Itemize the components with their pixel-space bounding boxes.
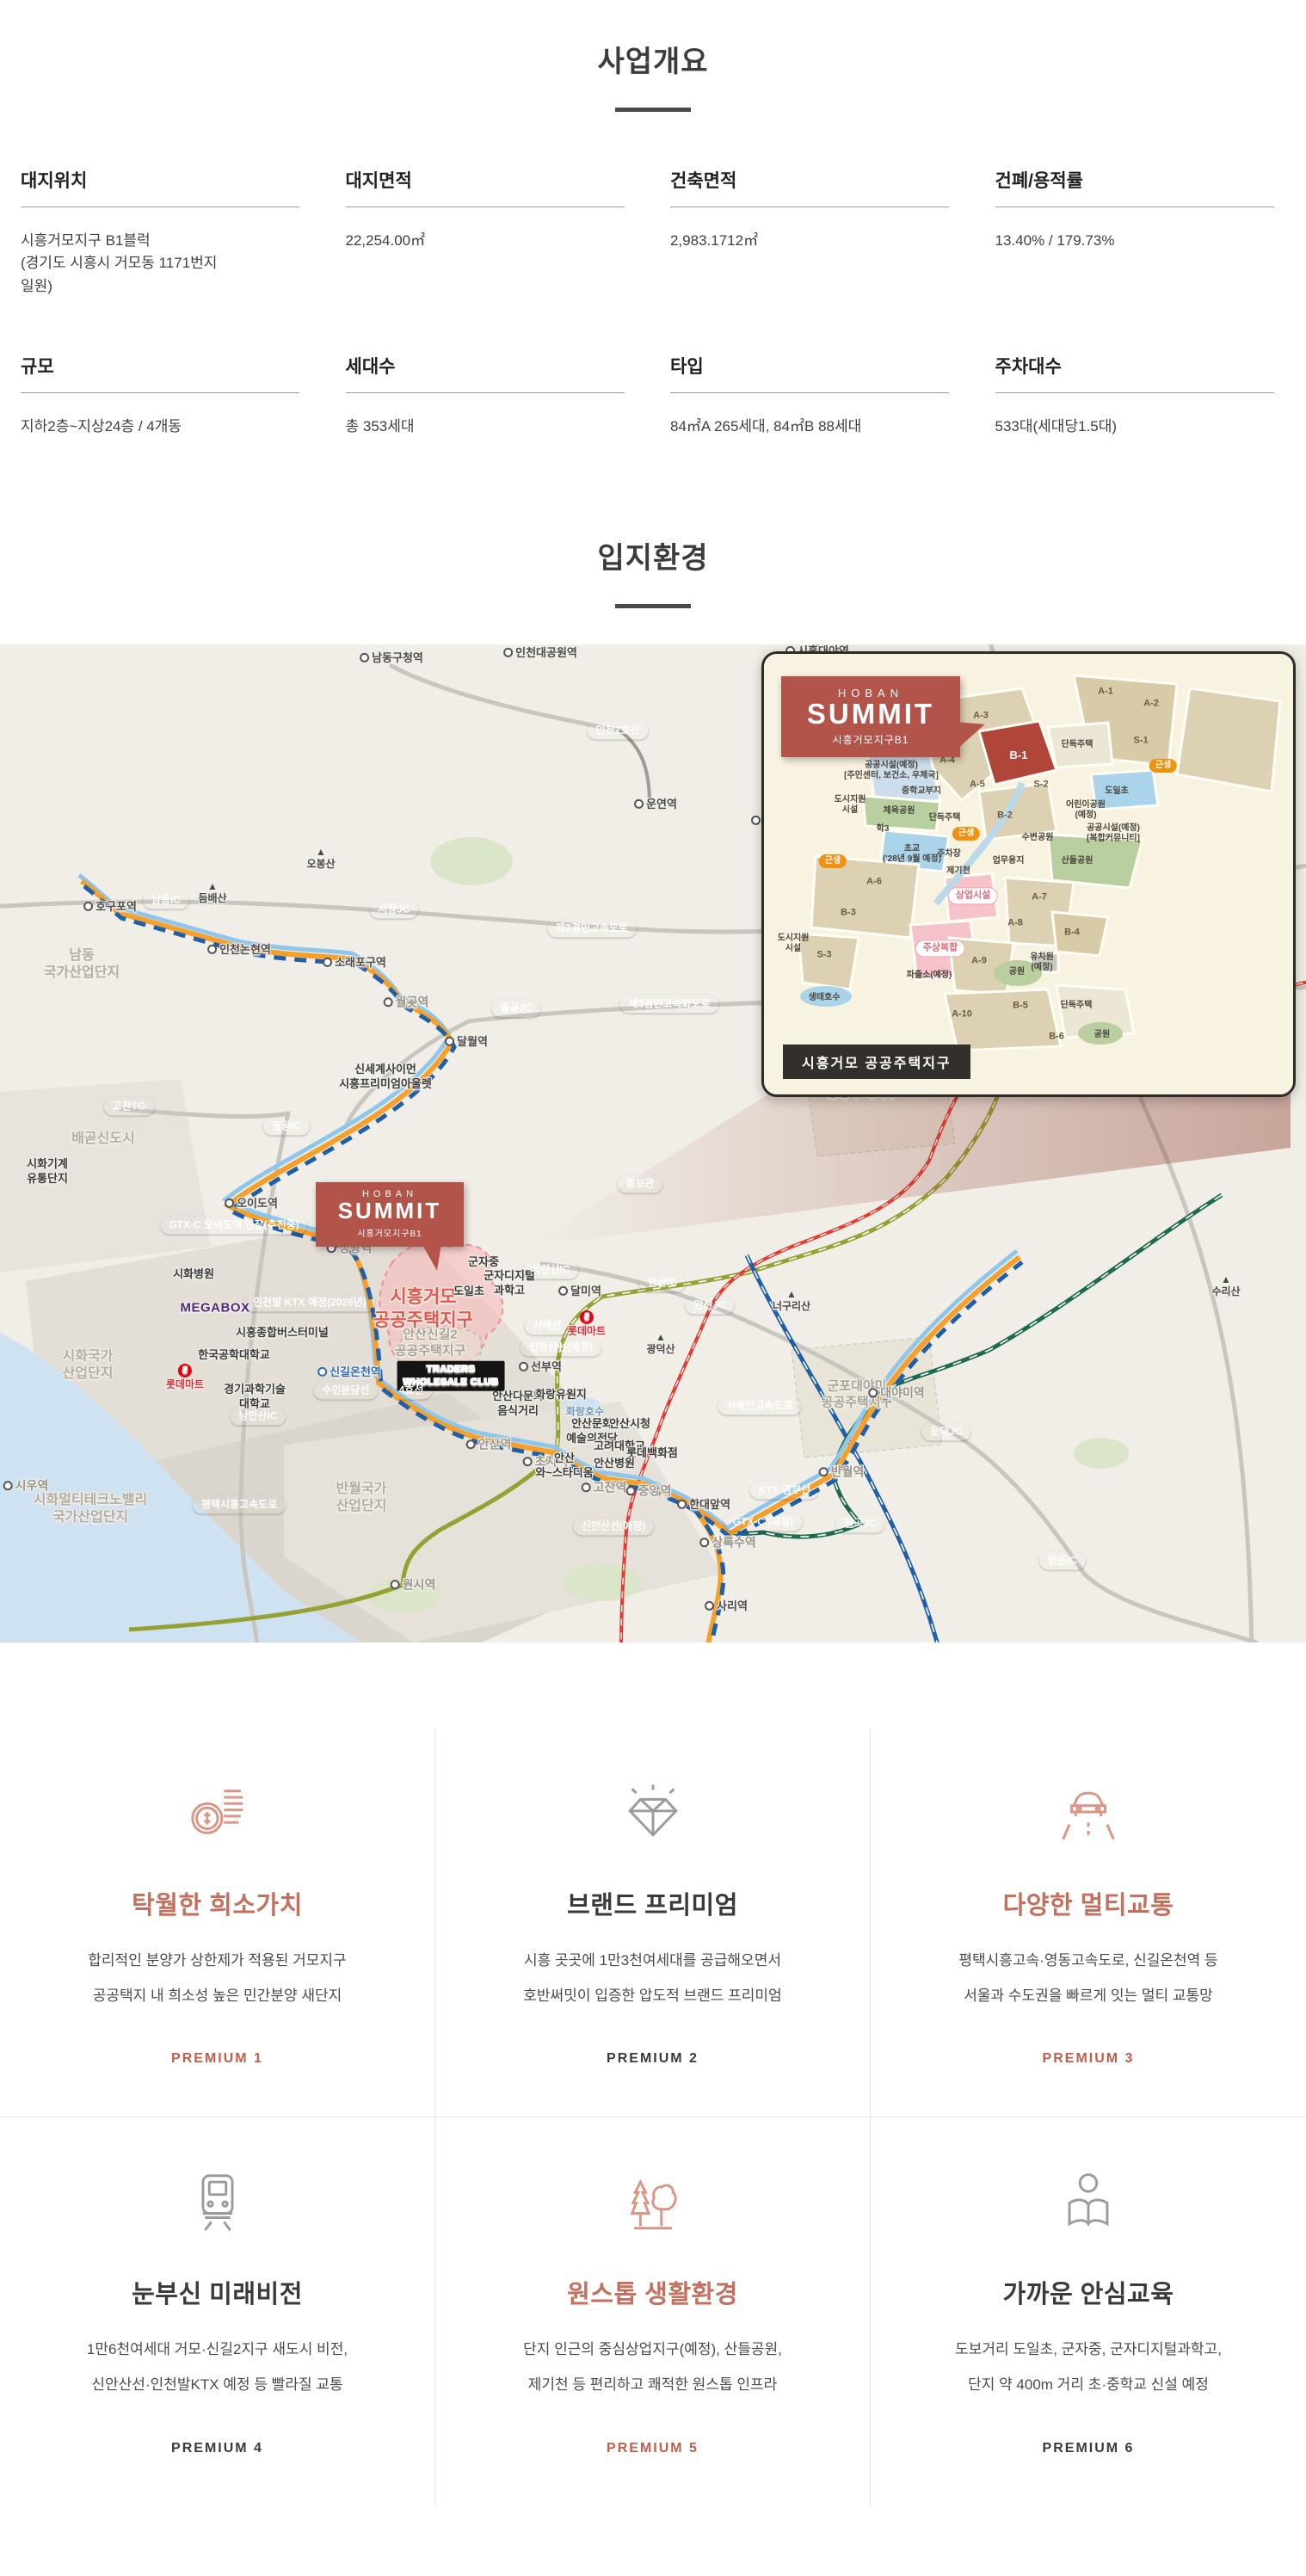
road-pill: 둔대JC [921, 1423, 970, 1441]
premium-card-6: 가까운 안심교육 도보거리 도일초, 군자중, 군자디지털과학고, 단지 약 4… [871, 2117, 1306, 2506]
coins-icon [0, 1778, 434, 1846]
inset-name-label: 단독주택 [929, 813, 961, 823]
station-label: 선부역 [519, 1360, 562, 1374]
poi-label: 안산시청 [609, 1417, 650, 1431]
title-underline [615, 108, 691, 112]
inset-block-label: S-2 [1033, 780, 1048, 791]
inset-block-label: A-6 [866, 877, 882, 888]
road-pill: 서창JC [369, 901, 418, 919]
brand-sub: 시흥거모지구B1 [319, 1226, 460, 1239]
section-location: 입지환경 [0, 534, 1306, 1642]
premium-card-1: 탁월한 희소가치 합리적인 분양가 상한제가 적용된 거모지구 공공택지 내 희… [0, 1729, 435, 2117]
geunsaeng-pill: 근생 [1149, 759, 1177, 773]
road-pill: 월곶JC [491, 1000, 540, 1018]
incheon-line2-pill: 인천2호선 [588, 722, 649, 740]
inset-name-label: 초교 ('28년 9월 예정) [883, 844, 941, 865]
inset-block-label: A-9 [971, 956, 987, 967]
poi-label: 안산 와~스타디움 [535, 1451, 593, 1480]
train-icon [0, 2167, 434, 2234]
area-label: 시화멀티테크노밸리 국가산업단지 [34, 1492, 147, 1526]
inset-name-label: 주차장 [937, 849, 961, 860]
page: 사업개요 대지위치시흥거모지구 B1블럭 (경기도 시흥시 거모동 1171번지… [0, 0, 1306, 2506]
station-label: 원시역 [391, 1578, 436, 1593]
premium-title: 원스톱 생활환경 [435, 2274, 870, 2310]
poi-label: 시흥종합버스터미널 [236, 1326, 329, 1340]
inset-name-label: 단독주택 [1062, 740, 1093, 750]
overview-cell: 규모지하2층~지상24층 / 4개동 [21, 353, 311, 438]
gtx-line-pill: GTX-C (예정) [724, 1513, 803, 1531]
premium-desc: 제기천 등 편리하고 쾌적한 원스톱 인프라 [435, 2376, 870, 2394]
mountain-label: ▲ 수리산 [1211, 1274, 1240, 1297]
inset-name-label: 유치원 (예정) [1030, 952, 1054, 973]
reading-person-icon [871, 2167, 1306, 2234]
car-road-icon [871, 1778, 1306, 1846]
station-label: 오이도역 [225, 1197, 278, 1211]
commercial-pill: 주상복합 [915, 940, 965, 957]
field-label: 건폐/용적률 [995, 167, 1286, 193]
overview-title: 사업개요 [0, 38, 1306, 80]
hoban-summit-callout[interactable]: HOBAN SUMMIT 시흥거모지구B1 [316, 1182, 464, 1246]
mountain-label: ▲ 듬배산 [198, 881, 226, 903]
poi-label: 시화병원 [173, 1267, 214, 1281]
premium-desc: 단지 인근의 중심상업지구(예정), 산들공원, [435, 2341, 870, 2358]
inset-name-label: 어린이공원 (예정) [1066, 800, 1106, 821]
field-value: 시흥거모지구 B1블럭 (경기도 시흥시 거모동 1171번지 일원) [21, 230, 311, 298]
field-value: 84㎡A 265세대, 84㎡B 88세대 [670, 416, 961, 438]
inset-block-label: A-5 [970, 780, 985, 791]
station-label: 월곶역 [384, 995, 429, 1011]
mountain-label: ▲ 광덕산 [646, 1332, 675, 1354]
inset-block-label: S-1 [1133, 736, 1148, 747]
poi-label: 안산병원 [594, 1457, 635, 1470]
premium-desc: 서울과 수도권을 빠르게 잇는 멀티 교통망 [871, 1987, 1306, 2005]
brand-summit: SUMMIT [785, 699, 957, 730]
station-label: 소래포구역 [323, 956, 386, 970]
poi-label: 군자중 [468, 1255, 499, 1269]
premium-desc: 1만6천여세대 거모·신길2지구 새도시 비전, [0, 2341, 434, 2358]
diamond-icon [435, 1778, 870, 1846]
ktx-line-pill: KTX 경부선 [750, 1482, 819, 1500]
premium-desc: 단지 약 400m 거리 초·중학교 신설 예정 [871, 2376, 1306, 2394]
overview-cell: 대지면적22,254.00㎡ [346, 167, 637, 298]
field-label: 규모 [21, 353, 311, 379]
field-value: 13.40% / 179.73% [995, 230, 1286, 252]
premium-title: 브랜드 프리미엄 [435, 1885, 870, 1921]
road-pill: 양촌IC [1039, 1552, 1086, 1570]
premium-desc: 호반써밋이 입증한 압도적 브랜드 프리미엄 [435, 1987, 870, 2005]
premium-card-5: 원스톱 생활환경 단지 인근의 중심상업지구(예정), 산들공원, 제기천 등 … [435, 2117, 871, 2506]
inset-block-label: A-7 [1032, 892, 1047, 903]
poi-label: 신세계사이먼 시흥프리미엄아울렛 [339, 1063, 432, 1091]
field-label: 건축면적 [670, 167, 961, 193]
location-map[interactable]: 배곧신도시남동 국가산업단지시화국가 산업단지시화멀티테크노밸리 국가산업단지반… [0, 644, 1306, 1642]
premium-title: 다양한 멀티교통 [871, 1885, 1306, 1921]
road-pill: 남동IC [143, 891, 189, 909]
station-label: 인천논현역 [207, 943, 271, 957]
field-label: 대지위치 [21, 167, 311, 193]
road-pill: 정왕IC [263, 1118, 310, 1136]
inset-name-label: 도시지원 시설 [835, 795, 866, 816]
field-label: 타입 [670, 353, 961, 379]
inset-name-label: 제기천 [946, 866, 970, 877]
inset-name-label: 단독주택 [1061, 1001, 1093, 1011]
area-label: 배곧신도시 [71, 1131, 135, 1148]
premium-card-4: 눈부신 미래비전 1만6천여세대 거모·신길2지구 새도시 비전, 신안산선·인… [0, 2117, 435, 2506]
brand-sub: 시흥거모지구B1 [785, 732, 957, 747]
inset-name-label: 학3 [877, 824, 890, 835]
overview-cell: 대지위치시흥거모지구 B1블럭 (경기도 시흥시 거모동 1171번지 일원) [21, 167, 311, 298]
station-label: 시우역 [3, 1479, 49, 1494]
inset-name-label: 생태호수 [809, 993, 841, 1003]
inset-name-label: 수변공원 [1022, 833, 1054, 843]
road-pill: 평택시흥고속도로 [193, 1496, 286, 1514]
road-pill: 제2경인고속도로 [547, 920, 637, 938]
poi-label: 경기과학기술 대학교 [224, 1383, 286, 1411]
mountain-label: ▲ 오봉산 [306, 847, 335, 869]
ktx-line-pill: 인천발 KTX 예정(2026년) [244, 1294, 375, 1312]
poi-label: 시화기계 유통단지 [27, 1157, 68, 1186]
inset-block-label: B-3 [841, 908, 856, 919]
road-pill: 안산IC [639, 1274, 686, 1292]
station-label: 반월역 [819, 1465, 865, 1481]
sinansan-line-pill: 신안산선(예정) [573, 1518, 654, 1536]
inset-block-label: A-2 [1143, 699, 1159, 710]
field-value: 533대(세대당1.5대) [995, 416, 1286, 438]
station-label: 한대앞역 [677, 1498, 730, 1512]
overview-cell: 건축면적2,983.1712㎡ [670, 167, 961, 298]
poi-label: 화랑유원지 [535, 1388, 587, 1402]
geunsaeng-pill: 근생 [819, 854, 847, 868]
premium-section: 탁월한 희소가치 합리적인 분양가 상한제가 적용된 거모지구 공공택지 내 희… [0, 1729, 1306, 2506]
premium-desc: 평택시흥고속·영동고속도로, 신길온천역 등 [871, 1952, 1306, 1969]
premium-tag: PREMIUM 1 [0, 2051, 434, 2067]
field-value: 22,254.00㎡ [346, 230, 637, 252]
station-label: 사리역 [705, 1599, 748, 1613]
station-label: 호구포역 [83, 900, 137, 914]
station-label: 인천대공원역 [503, 646, 577, 660]
overview-cell: 건폐/용적률13.40% / 179.73% [995, 167, 1286, 298]
mountain-label: ▲ 너구리산 [773, 1289, 810, 1311]
road-pill: 남안산IC [230, 1408, 286, 1426]
callout-pointer-icon [422, 1243, 441, 1271]
premium-tag: PREMIUM 6 [871, 2441, 1306, 2456]
inset-name-label: 중학교부지 [902, 786, 941, 797]
inset-block-label: A-1 [1098, 687, 1113, 698]
section-overview: 사업개요 대지위치시흥거모지구 B1블럭 (경기도 시흥시 거모동 1171번지… [0, 0, 1306, 438]
station-label: 고잔역 [582, 1481, 627, 1496]
overview-table: 대지위치시흥거모지구 B1블럭 (경기도 시흥시 거모동 1171번지 일원) … [0, 167, 1306, 438]
field-label: 세대수 [346, 353, 637, 379]
inset-name-label: 체육공원 [884, 806, 915, 817]
field-label: 주차대수 [995, 353, 1286, 379]
megabox-label: MEGABOX [180, 1301, 249, 1317]
inset-b1-label: B-1 [1010, 749, 1028, 763]
premium-tag: PREMIUM 2 [435, 2051, 870, 2067]
road-pill: 팔곡JC [835, 1515, 884, 1533]
road-pill: 안산JC [685, 1297, 734, 1315]
premium-title: 탁월한 희소가치 [0, 1885, 434, 1921]
lottemart-label: 롯데마트 [166, 1364, 204, 1391]
trees-icon [435, 2167, 870, 2234]
field-label: 대지면적 [346, 167, 637, 193]
inset-block-label: B-4 [1064, 927, 1080, 939]
inset-block-label: B-5 [1013, 1001, 1028, 1012]
premium-tag: PREMIUM 3 [871, 2051, 1306, 2067]
sinansan-line-pill: 신안산선(예정) [521, 1339, 601, 1357]
commercial-pill: 상업시설 [948, 888, 998, 904]
overview-cell: 세대수총 353세대 [346, 353, 637, 438]
overview-cell: 주차대수533대(세대당1.5대) [995, 353, 1286, 438]
geunsaeng-pill: 근생 [952, 827, 980, 841]
station-label: 남동구청역 [360, 651, 423, 665]
inset-name-label: 공공시설(예정) [주민센터, 보건소, 우체국] [844, 761, 939, 781]
district-label: 안산신길2 공공주택지구 [395, 1328, 466, 1360]
site-plan-inset[interactable]: A-1A-2A-3단독주택S-1근생B-1A-4공공시설(예정) [주민센터, … [761, 651, 1296, 1097]
poi-label: 도일초 [453, 1285, 484, 1298]
premium-desc: 도보거리 도일초, 군자중, 군자디지털과학고, [871, 2341, 1306, 2358]
inset-name-label: 업무용지 [993, 856, 1025, 866]
overview-cell: 타입84㎡A 265세대, 84㎡B 88세대 [670, 353, 961, 438]
premium-title: 눈부신 미래비전 [0, 2274, 434, 2310]
location-title: 입지환경 [0, 534, 1306, 576]
inset-name-label: 도시지원 시설 [778, 934, 810, 954]
premium-tag: PREMIUM 4 [0, 2441, 434, 2456]
area-label: 반월국가 산업단지 [336, 1481, 387, 1515]
inset-block-label: A-10 [952, 1009, 972, 1020]
poi-label: 한국공학대학교 [198, 1348, 270, 1362]
field-value: 2,983.1712㎡ [670, 230, 961, 252]
inset-hoban-summit-callout: HOBAN SUMMIT 시흥거모지구B1 [781, 676, 960, 757]
station-label: 대야미역 [868, 1386, 925, 1402]
title-underline [615, 604, 691, 608]
premium-card-3: 다양한 멀티교통 평택시흥고속·영동고속도로, 신길온천역 등 서울과 수도권을… [871, 1729, 1306, 2117]
inset-block-label: B-2 [997, 810, 1013, 822]
inset-name-label: 도일초 [1105, 786, 1129, 797]
premium-desc: 합리적인 분양가 상한제가 적용된 거모지구 [0, 1952, 434, 1969]
inset-name-label: 공공시설(예정) [복합커뮤니티] [1087, 823, 1140, 844]
inset-name-label: 공원 [1094, 1030, 1110, 1040]
road-pill: 제3경인고속화도로 [620, 995, 719, 1014]
premium-desc: 공공택지 내 희소성 높은 민간분양 새단지 [0, 1987, 434, 2005]
lottemart-label: 롯데마트 [568, 1310, 606, 1338]
road-pill: 고잔TG [104, 1098, 155, 1116]
inset-name-label: 산들공원 [1062, 856, 1093, 866]
promo-hall-badge[interactable]: 홍보관 [617, 1175, 662, 1193]
line4-pill: 4호선 [391, 1382, 433, 1400]
field-value: 지하2층~지상24층 / 4개동 [21, 416, 311, 438]
area-label: 남동 국가산업단지 [44, 947, 120, 982]
road-pill: 서해안고속도로 [718, 1397, 801, 1415]
premium-title: 가까운 안심교육 [871, 2274, 1306, 2310]
station-label: 중앙역 [626, 1484, 672, 1500]
station-label: 운연역 [634, 798, 677, 811]
premium-tag: PREMIUM 5 [435, 2441, 870, 2456]
station-label: 상록수역 [699, 1536, 756, 1551]
inset-block-label: B-6 [1049, 1032, 1064, 1043]
station-label: 신길온천역 [317, 1365, 381, 1379]
station-label: 달미역 [558, 1285, 601, 1298]
field-value: 총 353세대 [346, 416, 637, 438]
brand-summit: SUMMIT [319, 1199, 460, 1223]
inset-name-label: 공원 [1009, 967, 1025, 977]
premium-desc: 신안산선·인천발KTX 예정 등 빨라질 교통 [0, 2376, 434, 2394]
road-pill: 서안산IC [522, 1261, 578, 1279]
inset-district-badge: 시흥거모 공공주택지구 [783, 1045, 970, 1079]
inset-block-label: S-3 [816, 950, 831, 961]
suin-line-pill: 수인분당선 [313, 1382, 378, 1400]
station-label: 달월역 [445, 1035, 488, 1049]
premium-desc: 시흥 곳곳에 1만3천여세대를 공급해오면서 [435, 1952, 870, 1969]
premium-card-2: 브랜드 프리미엄 시흥 곳곳에 1만3천여세대를 공급해오면서 호반써밋이 입증… [435, 1729, 871, 2117]
gtx-line-pill: GTX-C 오이도역 연장(추진중) [160, 1217, 307, 1235]
seohae-line-pill: 서해선 [524, 1317, 570, 1335]
inset-name-label: 파출소(예정) [907, 971, 952, 981]
area-label: 시화국가 산업단지 [63, 1348, 114, 1383]
inset-block-label: A-8 [1007, 918, 1023, 929]
station-label: 안산역 [466, 1438, 512, 1453]
